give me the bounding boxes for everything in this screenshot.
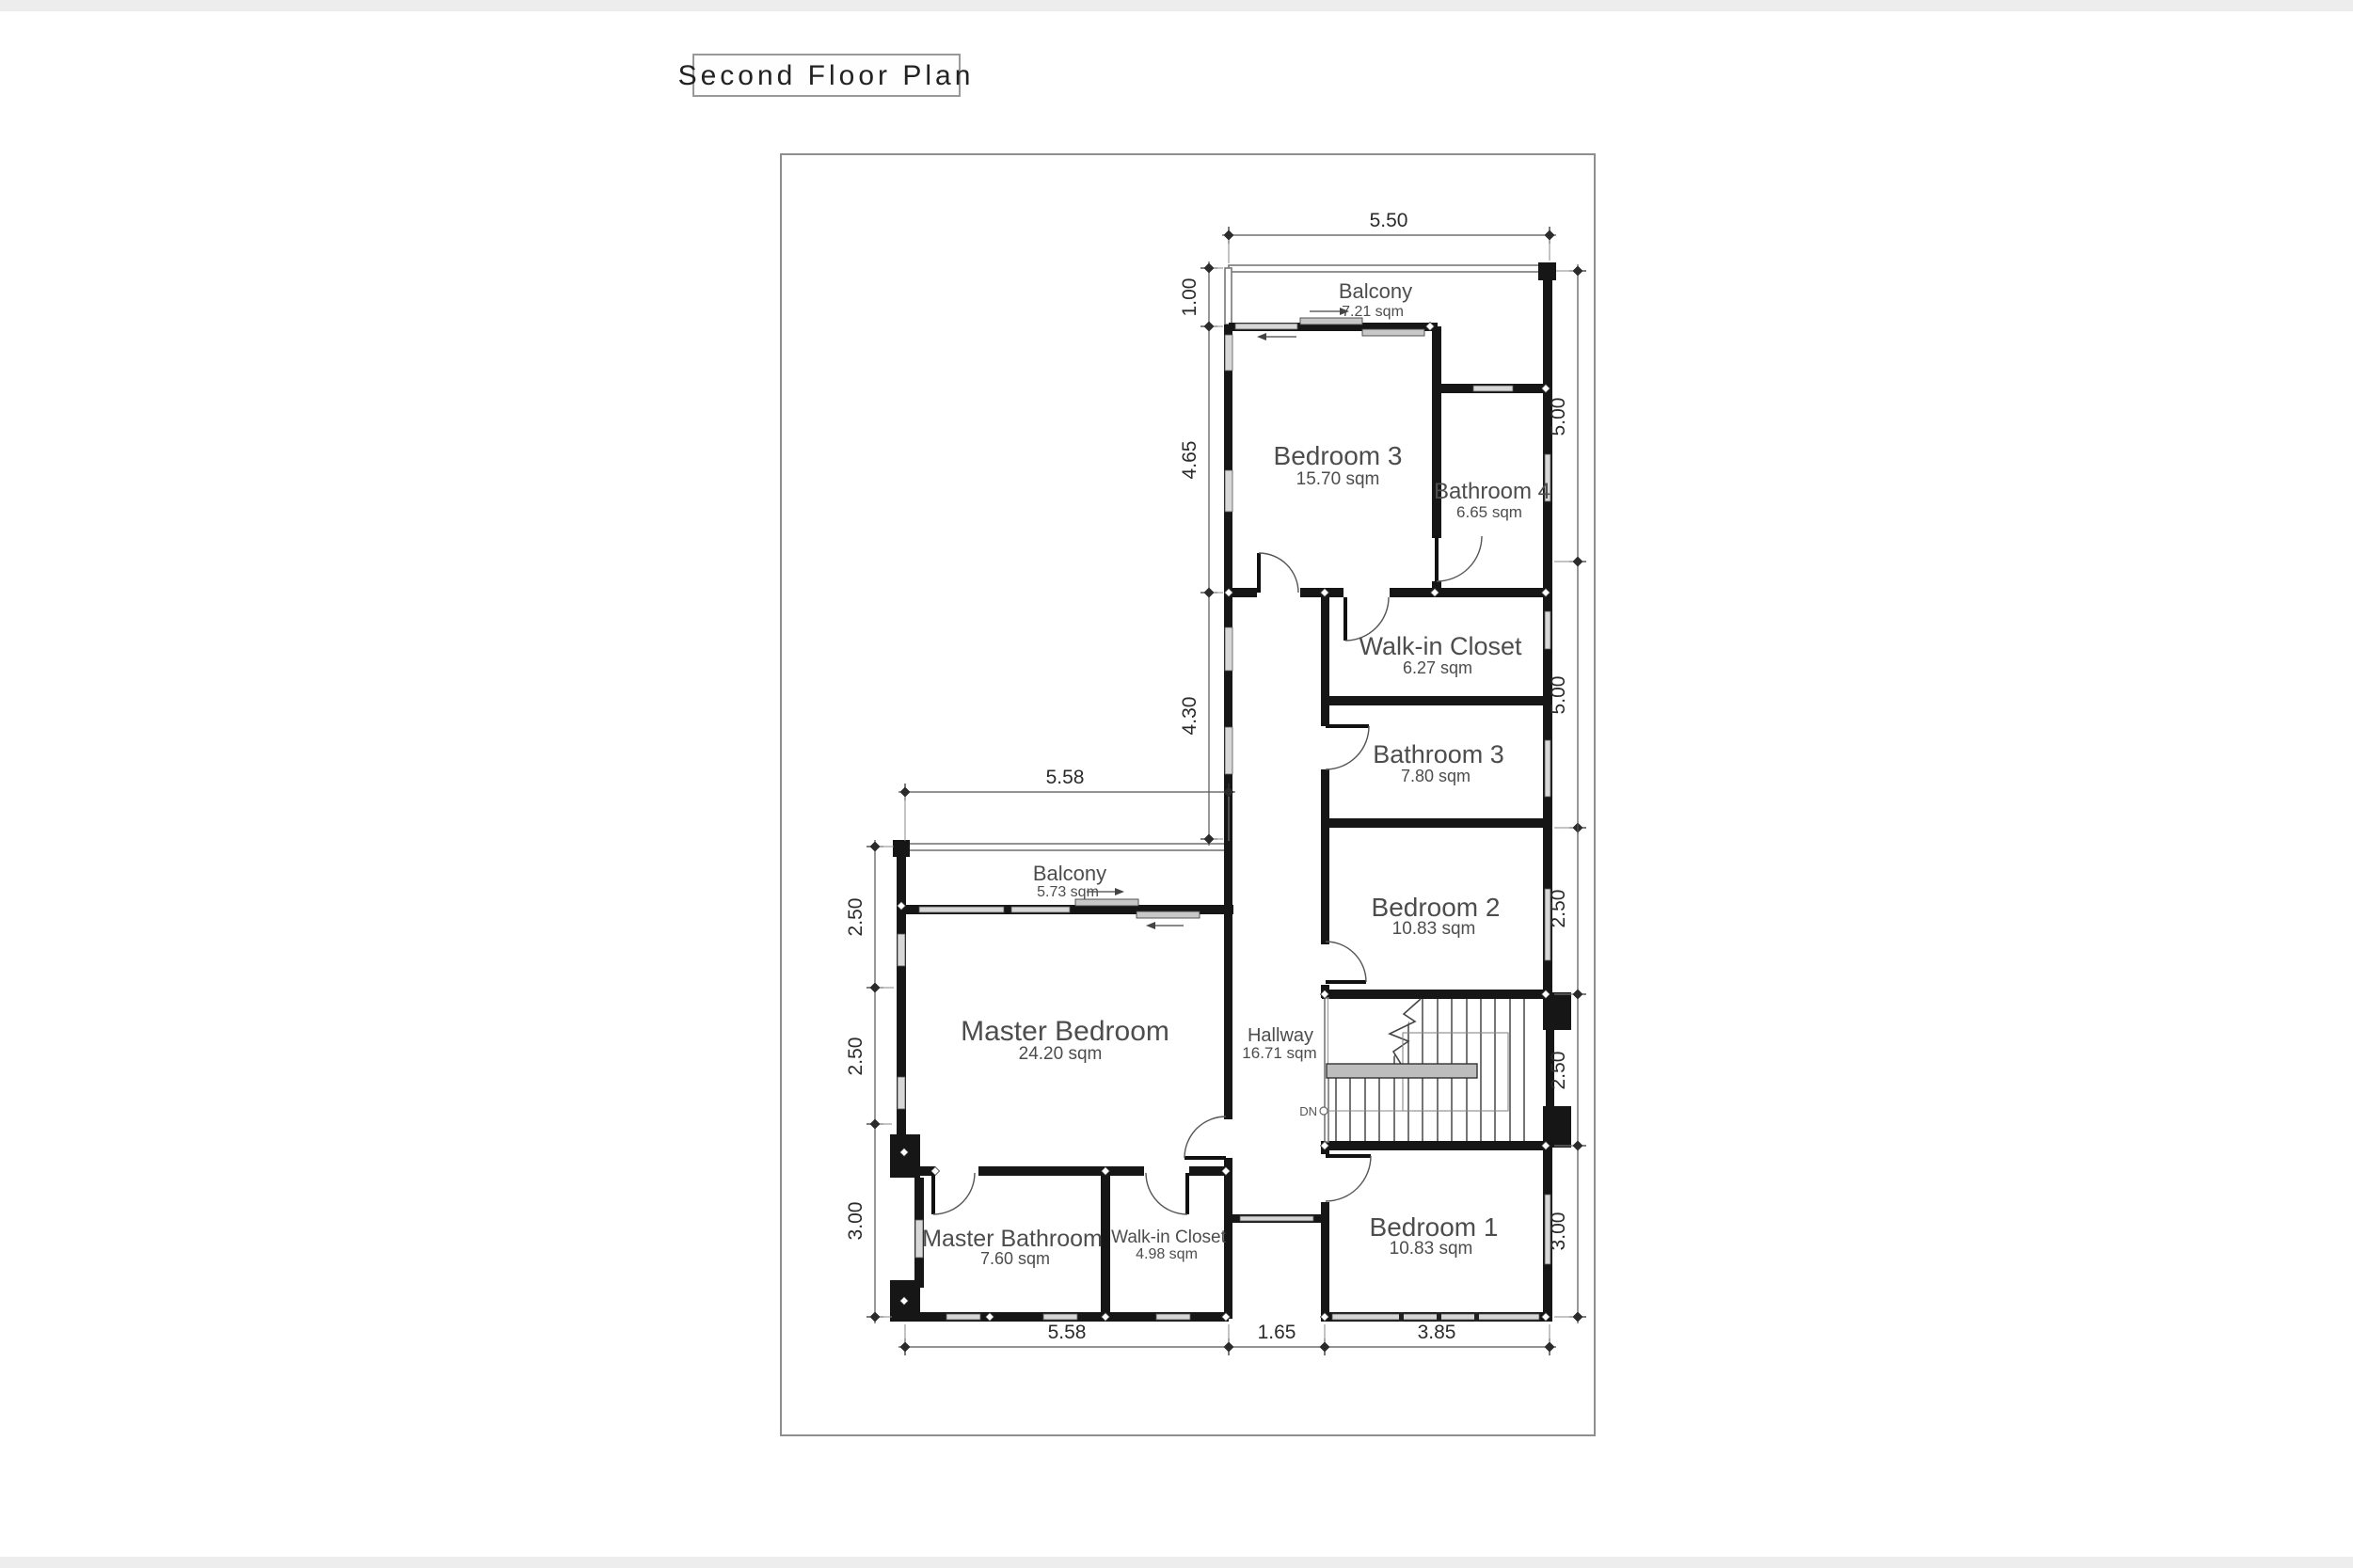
dim-lr-1: 2.50 <box>1548 1052 1569 1090</box>
room-area-bedroom3: 15.70 sqm <box>1296 469 1380 489</box>
upper-balcony-side-rail <box>1225 268 1232 325</box>
window-mbath-bottom-b <box>1043 1314 1077 1320</box>
dim-bottom-2: 3.85 <box>1418 1322 1456 1343</box>
room-label-bedroom2: Bedroom 2 <box>1372 893 1501 922</box>
stair-handrail <box>1327 1064 1477 1078</box>
room-label-walkin-lower: Walk-in Closet <box>1111 1227 1226 1247</box>
room-area-master-bathroom: 7.60 sqm <box>980 1249 1050 1268</box>
window-master-balcony-b <box>1011 907 1070 912</box>
screenshot-top-edge <box>0 0 2353 11</box>
room-label-bedroom1: Bedroom 1 <box>1370 1212 1499 1242</box>
room-label-hallway: Hallway <box>1248 1025 1313 1046</box>
wall-master-left <box>897 849 906 1159</box>
screenshot-bottom-edge <box>0 1557 2353 1568</box>
dim-ul-0: 1.00 <box>1179 278 1200 317</box>
upper-balcony-rail <box>1229 265 1543 272</box>
room-area-bathroom3: 7.80 sqm <box>1401 767 1471 785</box>
master-balcony-rail <box>905 844 1229 850</box>
room-label-walkin-upper: Walk-in Closet <box>1359 632 1522 660</box>
room-area-master-bedroom: 24.20 sqm <box>1019 1044 1103 1064</box>
dim-ll-0: 2.50 <box>845 898 866 937</box>
room-area-walkin-upper: 6.27 sqm <box>1403 658 1472 677</box>
stair-down-marker <box>1320 1107 1328 1115</box>
window-mullion-1 <box>1399 1312 1404 1322</box>
window-hallway-left-a <box>1225 627 1232 671</box>
window-hallway-left-b <box>1225 727 1232 774</box>
room-area-bedroom2: 10.83 sqm <box>1392 919 1476 939</box>
window-bedroom1-bottom <box>1332 1314 1539 1320</box>
sliding-door-balcony-master-panel-b <box>1137 911 1200 918</box>
window-master-balcony-a <box>919 907 1004 912</box>
dim-lr-0: 2.50 <box>1548 890 1569 928</box>
window-mullion-2 <box>1437 1312 1441 1322</box>
sliding-door-balcony-master-panel-a <box>1075 899 1138 906</box>
dim-ur-0: 5.00 <box>1548 398 1569 436</box>
wall-mbath-top-b <box>978 1166 1144 1176</box>
room-label-balcony-master: Balcony <box>1033 862 1106 885</box>
room-label-master-bedroom: Master Bedroom <box>961 1016 1169 1047</box>
page-title: Second Floor Plan <box>678 60 975 91</box>
floor-plan-screenshot: Second Floor Plan <box>0 0 2353 1568</box>
room-area-bathroom4: 6.65 sqm <box>1456 503 1522 521</box>
window-bedroom3-left-b <box>1225 470 1232 512</box>
room-area-walkin-lower: 4.98 sqm <box>1136 1246 1198 1262</box>
room-label-balcony-upper: Balcony <box>1339 279 1412 303</box>
room-area-hallway: 16.71 sqm <box>1242 1044 1316 1062</box>
window-bathroom3-right <box>1545 740 1550 797</box>
dim-lr-2: 3.00 <box>1548 1212 1569 1251</box>
window-closet-upper-right <box>1545 611 1550 649</box>
dim-ll-2: 3.00 <box>845 1202 866 1241</box>
wall-hall-right-b <box>1321 769 1329 944</box>
room-label-bathroom3: Bathroom 3 <box>1373 740 1504 768</box>
dim-ul-2: 4.30 <box>1179 697 1200 736</box>
window-mbath-bottom-a <box>946 1314 980 1320</box>
window-mullion-3 <box>1474 1312 1479 1322</box>
stair-down-label: DN <box>1299 1104 1317 1118</box>
wall-630-c <box>1390 588 1550 597</box>
wall-bedroom2-bottom <box>1322 990 1550 999</box>
window-master-left-b <box>898 1077 905 1109</box>
wall-bedroom3-right-a <box>1432 326 1441 538</box>
room-label-bedroom3: Bedroom 3 <box>1274 441 1403 470</box>
window-closet-lower-bottom <box>1156 1314 1190 1320</box>
room-label-bathroom4: Bathroom 4 <box>1434 479 1550 504</box>
dim-ll-1: 2.50 <box>845 1037 866 1076</box>
dim-top-width: 5.50 <box>1370 210 1408 231</box>
wall-stairs-bottom <box>1326 1141 1550 1150</box>
wall-hall-right-a <box>1321 593 1329 726</box>
wall-bathroom3-bottom <box>1326 818 1550 828</box>
dim-bottom-0: 5.58 <box>1048 1322 1087 1343</box>
dim-ur-1: 5.00 <box>1548 676 1569 715</box>
room-area-bedroom1: 10.83 sqm <box>1390 1239 1473 1259</box>
dim-master-width-label: 5.58 <box>1046 767 1085 788</box>
window-hallway-end <box>1240 1216 1313 1221</box>
dim-ul-1: 4.65 <box>1179 441 1200 480</box>
room-label-master-bathroom: Master Bathroom <box>922 1226 1103 1252</box>
dim-bottom-1: 1.65 <box>1258 1322 1296 1343</box>
room-area-balcony-master: 5.73 sqm <box>1037 884 1099 900</box>
window-bedroom3-top <box>1235 324 1297 329</box>
room-area-balcony-upper: 7.21 sqm <box>1342 304 1404 320</box>
window-bedroom3-left-a <box>1225 335 1232 371</box>
window-bathroom4-top <box>1473 386 1513 391</box>
floor-plan-canvas: Second Floor Plan <box>0 0 2353 1568</box>
wall-hallway-left <box>1224 593 1232 1119</box>
title-block: Second Floor Plan <box>678 55 975 96</box>
window-master-left-a <box>898 934 905 966</box>
sliding-door-balcony-upper-panel-b <box>1362 329 1424 336</box>
wall-closet-upper-bottom <box>1326 696 1550 705</box>
